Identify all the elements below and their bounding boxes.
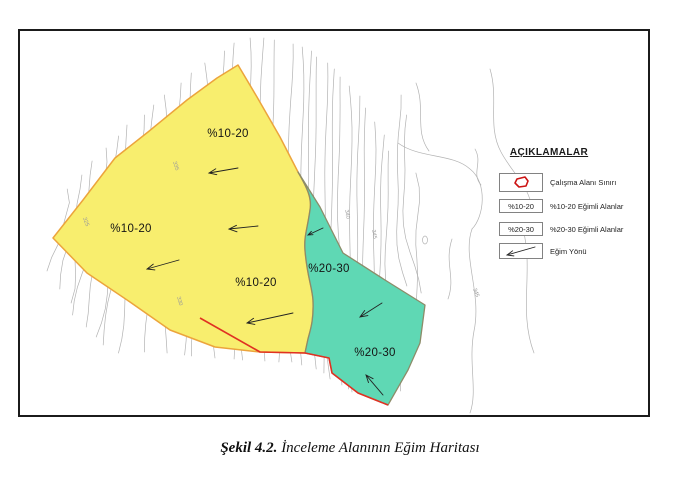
legend-swatch: %10-20	[499, 199, 543, 213]
document-page: 340 345 345 330 325 335 %10-20 %10-20 %1…	[0, 0, 700, 481]
legend-item-slope-20-30: %20-30 %20-30 Eğimli Alanlar	[499, 222, 623, 236]
contour-line	[398, 143, 482, 229]
contour-elevation-label: 345	[370, 229, 378, 239]
legend-item-slope-direction: Eğim Yönü	[499, 243, 587, 259]
legend-item-slope-10-20: %10-20 %10-20 Eğimli Alanlar	[499, 199, 623, 213]
contour-elevation-label: 340	[343, 209, 351, 219]
legend-item-label: Çalışma Alanı Sınırı	[550, 178, 616, 187]
legend-item-study-area-boundary: Çalışma Alanı Sınırı	[499, 173, 616, 192]
region-label: %10-20	[110, 223, 151, 235]
contour-line	[475, 149, 481, 185]
figure-caption-title: İnceleme Alanının Eğim Haritası	[277, 440, 479, 456]
region-label: %10-20	[207, 128, 248, 140]
slope-region-10-20	[53, 65, 313, 353]
legend-swatch: %20-30	[499, 222, 543, 236]
contour-line	[469, 229, 476, 413]
study-area-boundary-icon	[510, 175, 532, 190]
slope-region-20-30	[298, 172, 425, 405]
region-label: %10-20	[235, 277, 276, 289]
region-label: %20-30	[354, 347, 395, 359]
legend-title: AÇIKLAMALAR	[498, 147, 600, 158]
legend-swatch	[499, 243, 543, 259]
figure-caption: Şekil 4.2. İnceleme Alanının Eğim Harita…	[0, 440, 700, 457]
figure-caption-number: Şekil 4.2.	[220, 440, 277, 456]
legend-item-label: Eğim Yönü	[550, 247, 587, 256]
closed-contour	[423, 236, 428, 244]
contour-elevation-label: 345	[471, 288, 480, 299]
legend-item-label: %10-20 Eğimli Alanlar	[550, 202, 623, 211]
legend-item-label: %20-30 Eğimli Alanlar	[550, 225, 623, 234]
slope-direction-arrow-icon	[502, 244, 540, 258]
map-frame: 340 345 345 330 325 335 %10-20 %10-20 %1…	[18, 29, 650, 417]
region-label: %20-30	[308, 263, 349, 275]
legend-swatch	[499, 173, 543, 192]
contour-line	[416, 83, 429, 151]
contour-line	[448, 239, 452, 299]
contour-line	[403, 115, 421, 293]
